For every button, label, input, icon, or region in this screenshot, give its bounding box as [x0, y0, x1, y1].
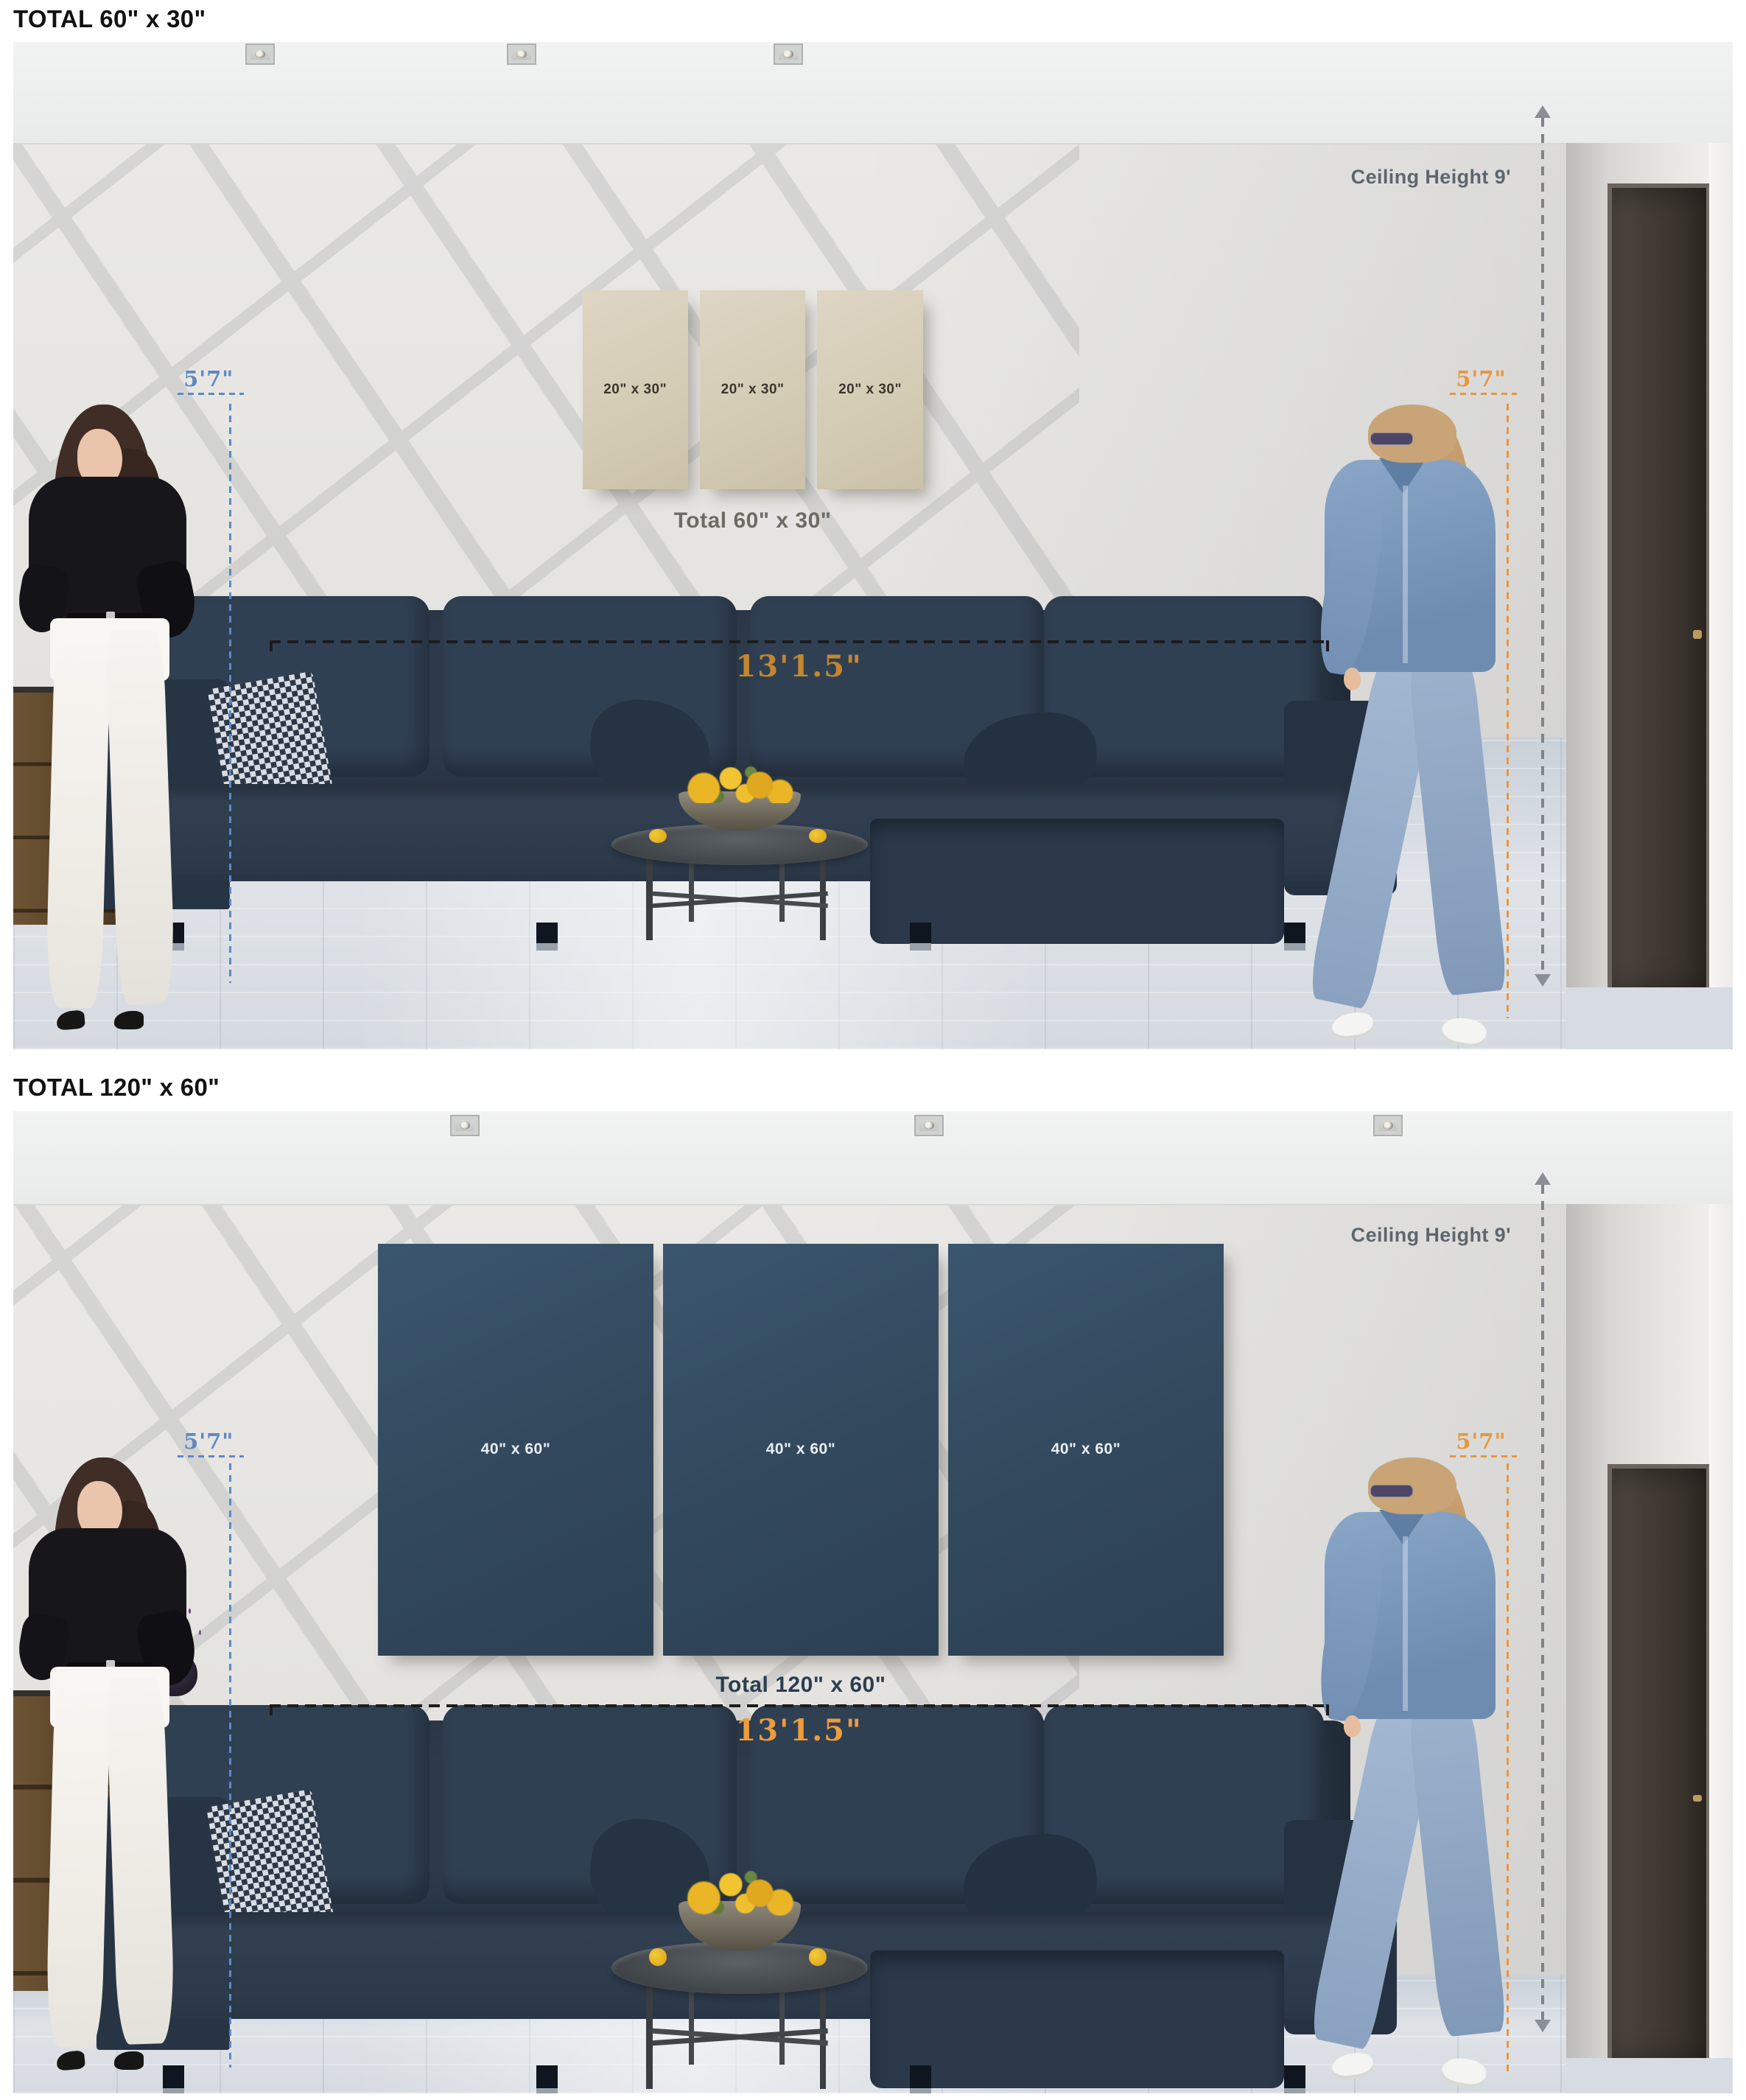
size-guide-section-60x30: TOTAL 60" x 30": [0, 0, 1746, 1049]
sofa-leg: [1284, 923, 1305, 951]
ceiling: [13, 42, 1733, 144]
fruit: [809, 829, 827, 843]
sneaker: [1330, 2051, 1375, 2082]
person-height-line-left: [229, 1463, 231, 2068]
canvas-panel: 40" x 60": [378, 1244, 653, 1656]
wall-width-label: 13'1.5": [270, 1713, 1329, 1748]
sofa-chaise: [870, 1950, 1283, 2088]
coffee-table: [606, 1877, 873, 2093]
right-wall-pillar: [1709, 143, 1733, 1049]
person-height-line-right: [1507, 1463, 1509, 2072]
woman-right: [1310, 405, 1554, 1046]
white-trousers: [50, 630, 169, 1008]
white-trousers: [50, 1678, 169, 2048]
canvas-size-label: 40" x 60": [766, 1441, 835, 1458]
fruit: [809, 1948, 827, 1965]
coffee-table: [606, 772, 873, 943]
door: [1607, 183, 1714, 996]
sofa-leg: [1284, 2065, 1305, 2093]
wall-width-label: 13'1.5": [270, 649, 1329, 684]
sunglasses: [1371, 1485, 1412, 1497]
woman-left: [20, 405, 233, 1029]
table-leg: [646, 858, 653, 941]
fruit-pile: [684, 1869, 796, 1917]
canvas-size-label: 40" x 60": [481, 1441, 550, 1458]
ceiling-height-line: [1541, 1185, 1544, 2020]
fruit: [649, 1948, 667, 1965]
person-height-line-left: [229, 404, 231, 983]
sofa-leg: [536, 2065, 558, 2093]
woman-right: [1310, 1457, 1554, 2086]
jeans-leg: [1408, 1702, 1508, 2037]
table-leg: [689, 858, 694, 922]
ceiling-height-label: Ceiling Height 9': [1351, 166, 1511, 189]
canvas-size-label: 20" x 30": [603, 382, 667, 398]
hand: [1344, 668, 1361, 690]
ceiling-light: [914, 1115, 944, 1136]
table-leg: [820, 1985, 827, 2089]
person-height-label-right: 5'7": [1456, 368, 1506, 390]
canvas-size-label: 20" x 30": [721, 382, 785, 398]
shoe: [55, 1009, 85, 1031]
ceiling-height-line: [1541, 118, 1544, 974]
sofa-chaise: [870, 819, 1283, 944]
sofa-leg: [910, 923, 931, 951]
canvas-panel: 20" x 30": [700, 290, 805, 490]
door-handle: [1693, 630, 1702, 639]
canvas-size-label: 40" x 60": [1051, 1441, 1121, 1458]
room-scene-120x60: 40" x 60" 40" x 60" 40" x 60" Total 120"…: [13, 1111, 1733, 2093]
size-guide-section-120x60: TOTAL 120" x 60": [0, 1068, 1746, 2093]
canvas-panel: 20" x 30": [817, 290, 922, 490]
ceiling-light: [1373, 1115, 1403, 1136]
fruit-pile: [684, 766, 796, 803]
shoe: [114, 1011, 144, 1029]
ceiling-light: [774, 43, 803, 65]
ceiling-light: [507, 43, 536, 65]
ceiling-light: [245, 43, 275, 65]
hallway-floor: [1566, 987, 1733, 1050]
panel-heading: TOTAL 120" x 60": [13, 1068, 1733, 1110]
sneaker: [1440, 1015, 1487, 1049]
panel-heading: TOTAL 60" x 30": [13, 0, 1733, 42]
woman-left: [20, 1457, 233, 2069]
person-height-label-left: 5'7": [183, 1431, 234, 1452]
ceiling: [13, 1111, 1733, 1206]
table-leg: [820, 858, 827, 941]
total-size-label: Total 120" x 60": [378, 1673, 1224, 1698]
person-height-label-right: 5'7": [1456, 1431, 1506, 1452]
canvas-panel: 40" x 60": [948, 1244, 1224, 1656]
shoe: [114, 2051, 144, 2070]
sunglasses: [1371, 433, 1412, 445]
wall-width-line: 13'1.5": [270, 1704, 1329, 1707]
jeans-leg: [1408, 655, 1509, 997]
table-leg: [646, 1985, 653, 2089]
black-blouse: [29, 477, 186, 620]
sneaker: [1440, 2055, 1487, 2090]
door-handle: [1693, 1795, 1702, 1802]
door: [1607, 1464, 1714, 2066]
ceiling-light: [450, 1115, 480, 1136]
sofa-leg: [910, 2065, 931, 2093]
canvas-set: 20" x 30" 20" x 30" 20" x 30": [583, 290, 923, 490]
table-leg: [689, 1985, 694, 2065]
canvas-panel: 40" x 60": [663, 1244, 939, 1656]
canvas-panel: 20" x 30": [583, 290, 688, 490]
canvas-set: 40" x 60" 40" x 60" 40" x 60": [378, 1244, 1224, 1656]
hallway-floor: [1566, 2058, 1733, 2093]
shoe: [56, 2050, 85, 2071]
right-wall-pillar: [1709, 1204, 1733, 2093]
room-scene-60x30: 20" x 30" 20" x 30" 20" x 30" Total 60" …: [13, 42, 1733, 1049]
wall-width-line: 13'1.5": [270, 640, 1329, 643]
canvas-size-label: 20" x 30": [838, 382, 902, 398]
person-height-label-left: 5'7": [183, 368, 234, 390]
hand: [1344, 1715, 1361, 1737]
fruit: [649, 829, 667, 843]
total-size-label: Total 60" x 30": [583, 508, 923, 533]
ceiling-height-label: Ceiling Height 9': [1351, 1224, 1511, 1247]
table-leg: [779, 858, 785, 922]
black-blouse: [29, 1528, 186, 1669]
sneaker: [1330, 1010, 1375, 1041]
sofa-leg: [536, 923, 558, 951]
table-leg: [779, 1985, 785, 2065]
person-height-line-right: [1507, 404, 1509, 1018]
